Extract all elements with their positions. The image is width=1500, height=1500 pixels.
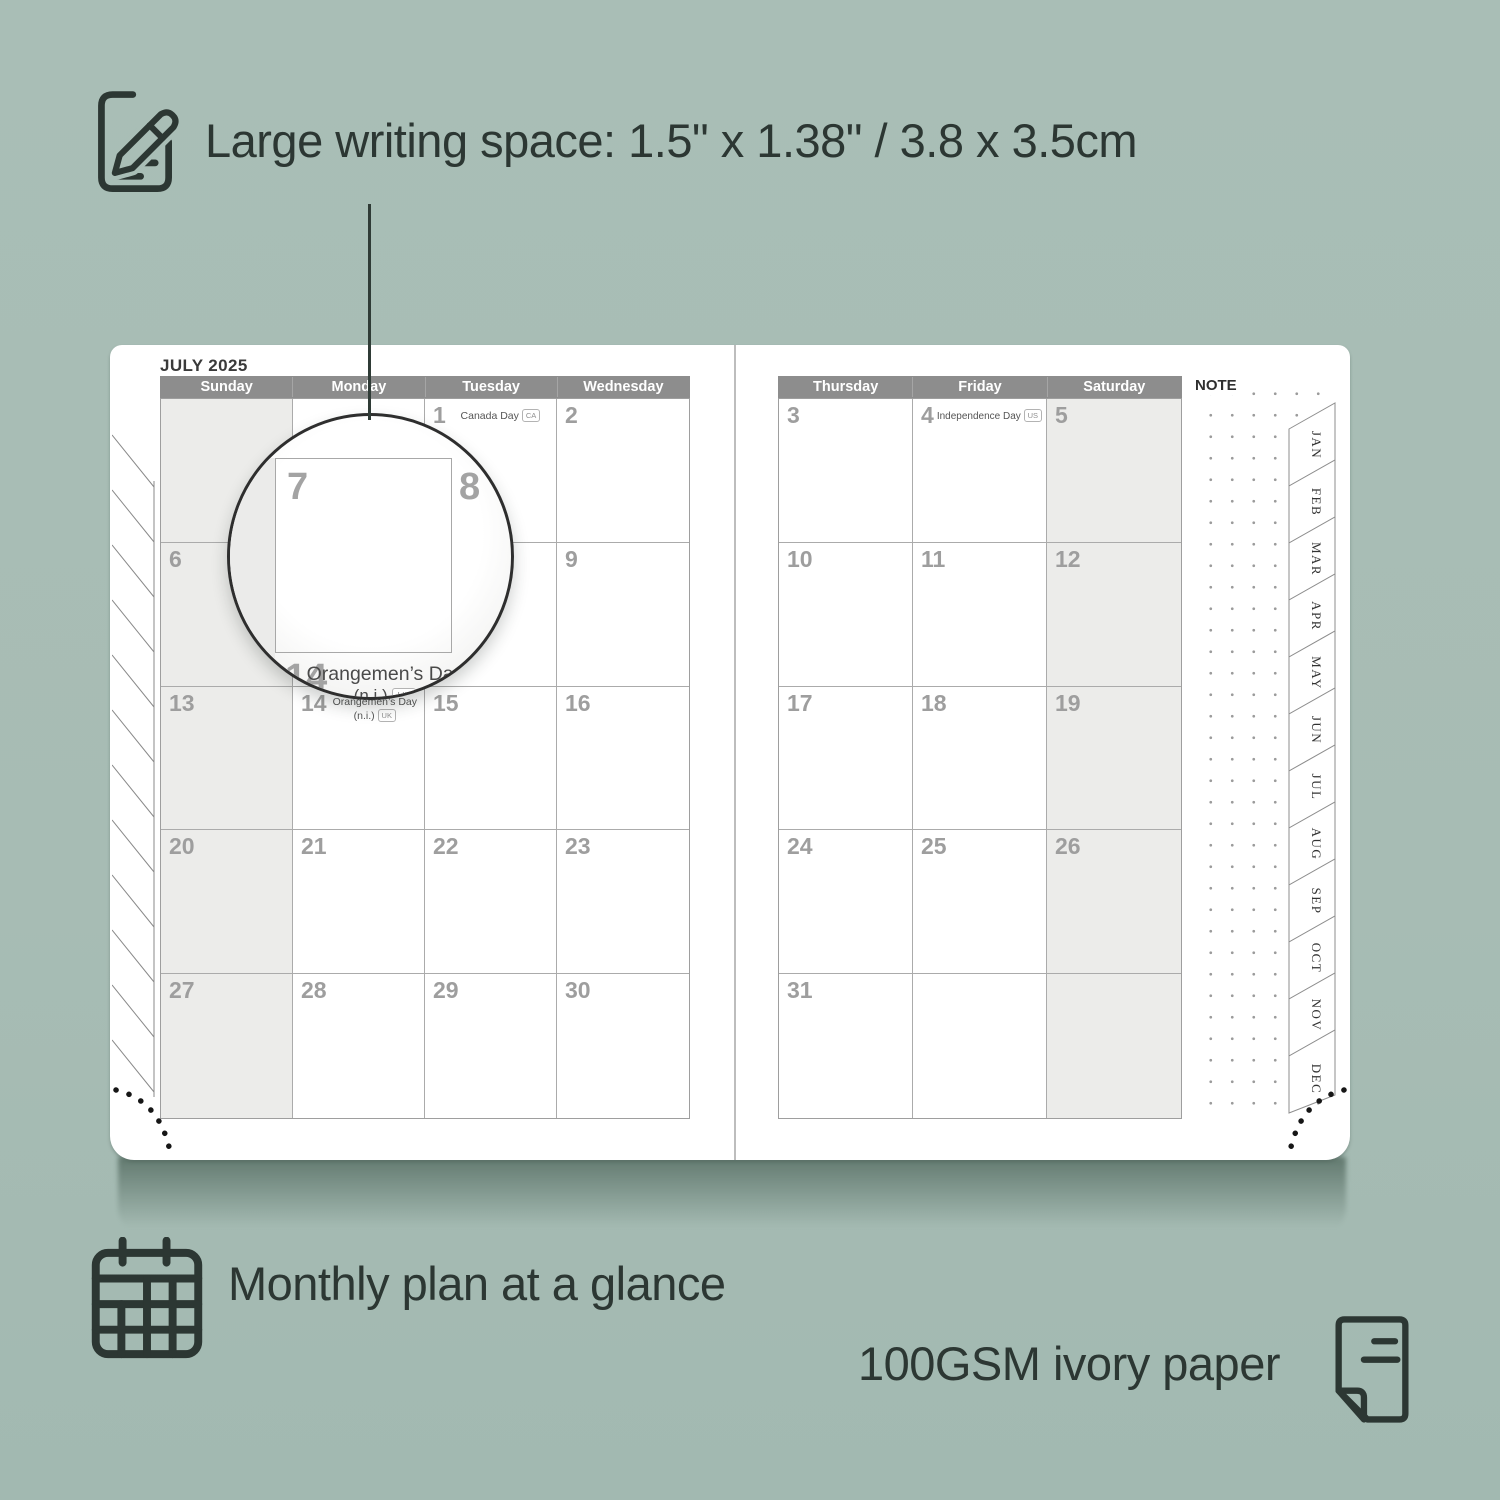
writing-space-label: Large writing space: 1.5" x 1.38" / 3.8 … [205,115,1137,167]
magnified-holiday-label: Orangemen’s Day [285,665,485,685]
magnifier: 7 8 14 Orangemen’s Day (n.i.) UK [227,413,514,700]
monthly-plan-icon [86,1237,208,1359]
magnified-weekend-shade [230,458,275,670]
monthly-plan-label: Monthly plan at a glance [228,1258,726,1310]
pointer-line [368,204,371,420]
magnified-day-7: 7 [287,468,308,506]
book-shadow [118,1157,1346,1237]
magnified-day-8: 8 [459,468,480,506]
paper-icon [1326,1312,1418,1428]
paper-label: 100GSM ivory paper [858,1338,1280,1390]
writing-space-icon [88,74,200,198]
